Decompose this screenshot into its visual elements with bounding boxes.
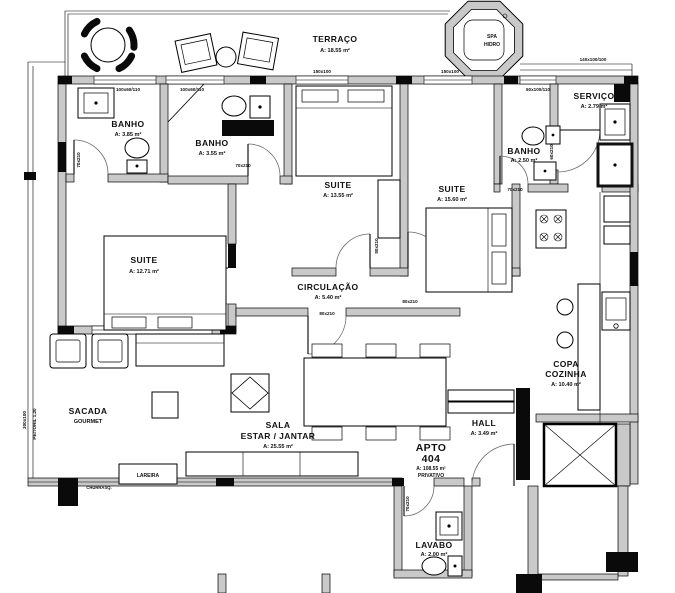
door-dim: 70x210 (507, 187, 523, 192)
dining-table (304, 344, 450, 440)
spa-sublabel: HIDRO (484, 42, 500, 48)
window-dim: 140x100/100 (580, 57, 607, 62)
terraco-area: A: 18.55 m² (320, 47, 350, 54)
wall-segment (168, 176, 248, 184)
sacada-label: SACADA (69, 406, 108, 416)
lounge-chair (175, 34, 217, 73)
wall-segment (536, 414, 638, 422)
column (58, 326, 74, 334)
suite2-label: SUITE (324, 180, 351, 190)
wall-segment (434, 478, 464, 486)
suite1-label: SUITE (130, 255, 157, 265)
wall-segment (538, 574, 618, 580)
door-dim: 80x210 (319, 311, 335, 316)
tv-rack (231, 374, 269, 412)
pillow (158, 317, 192, 328)
terrace-right-wall (520, 64, 632, 76)
stool (557, 299, 573, 315)
suite2-area: A: 13.55 m² (323, 192, 353, 199)
dining-chair (420, 344, 450, 357)
kitchen-sink-icon (602, 292, 630, 330)
window-dim: 150x100 (441, 69, 459, 74)
column (250, 76, 266, 84)
floor-plan: TERRAÇO A: 18.55 m² SPA HIDRO BANHO A: 3… (0, 0, 675, 593)
suite1-area: A: 12.71 m² (129, 268, 159, 275)
door-dim: 60x210 (549, 144, 554, 160)
suite3-label: SUITE (438, 184, 465, 194)
sill-note: PEITORIL 1,20 (32, 408, 37, 440)
lounge-chair (237, 32, 278, 70)
pillow (348, 90, 384, 102)
banho2-label: BANHO (195, 138, 228, 148)
toilet-icon (222, 96, 246, 116)
apto-note: PRIVATIVO (418, 473, 444, 479)
churrasqueira-box (58, 478, 78, 506)
lavabo-label: LAVABO (415, 540, 452, 550)
door-dim: 80x210 (402, 299, 418, 304)
wall-segment (228, 184, 236, 244)
window-dim: 100x60/110 (180, 87, 204, 92)
wall-segment (218, 574, 226, 593)
churrasqueira-label: CHURRASQ. (86, 485, 111, 490)
hall-label: HALL (472, 418, 496, 428)
circulacao-label: CIRCULAÇÃO (297, 282, 358, 292)
terrace-chair-icon (84, 56, 97, 69)
spa-label: SPA (487, 34, 497, 40)
window-dim: 100x60/110 (116, 87, 140, 92)
column (228, 244, 236, 268)
pillow (112, 317, 146, 328)
hall-cabinet (448, 402, 514, 413)
column (392, 478, 404, 486)
sala-label: SALA (266, 420, 291, 430)
wardrobe (378, 180, 400, 238)
terrace-round-table (91, 28, 125, 62)
apto-area: A: 108.55 m² (416, 466, 446, 472)
column (396, 76, 412, 84)
servico-area: A: 2.79 m² (581, 103, 608, 110)
copa-label: COPA (553, 359, 579, 369)
spa-basin (464, 20, 504, 60)
kitchen-counter (578, 284, 600, 410)
hall-cabinet (448, 390, 514, 401)
hall-area: A: 3.49 m² (471, 430, 498, 437)
wall-segment (58, 84, 66, 332)
cabinet (604, 226, 630, 244)
dining-chair (366, 427, 396, 440)
window-dim: 60x100/110 (526, 87, 550, 92)
terraco-label: TERRAÇO (313, 34, 358, 44)
servico-label: SERVIÇO (574, 91, 615, 101)
wall-segment (464, 486, 472, 576)
floor-plan-drawing: TERRAÇO A: 18.55 m² SPA HIDRO BANHO A: 3… (0, 0, 675, 593)
column (516, 574, 542, 593)
copa-sublabel: COZINHA (545, 369, 587, 379)
pillow (492, 252, 506, 284)
terrace-chair-icon (119, 56, 132, 69)
toilet-icon (125, 138, 149, 158)
wall-segment (472, 478, 480, 486)
wall-segment (292, 268, 336, 276)
bed (426, 208, 512, 292)
column (504, 76, 518, 84)
bed (296, 86, 392, 176)
pillow (492, 214, 506, 246)
wall-segment (400, 84, 408, 276)
sala-area: A: 25.55 m² (263, 443, 293, 450)
wall-segment (494, 84, 502, 184)
wall-segment (616, 424, 630, 486)
terrace-side-table (216, 47, 236, 67)
door-dim: 80x210 (374, 238, 379, 254)
wall-segment (66, 174, 74, 182)
column (24, 172, 36, 180)
wall-segment (160, 84, 168, 182)
terrace-chair-icon (129, 30, 134, 47)
stove-icon (536, 210, 566, 248)
sofa (136, 334, 224, 366)
wall-segment (108, 174, 168, 182)
banho1-label: BANHO (111, 119, 144, 129)
apto-number: 404 (422, 453, 441, 465)
wall-segment (512, 184, 520, 276)
banho3-area: A: 2.50 m² (511, 157, 538, 164)
sink-icon (436, 512, 462, 540)
bed (104, 236, 226, 330)
dining-chair (312, 427, 342, 440)
toilet-icon (522, 127, 544, 145)
wall-segment (284, 84, 292, 184)
circulacao-area: A: 5.40 m² (315, 294, 342, 301)
banho1-area: A: 3.85 m² (115, 131, 142, 138)
wall-segment (394, 486, 402, 576)
column (606, 552, 638, 572)
dining-chair (366, 344, 396, 357)
suite3-area: A: 15.60 m² (437, 196, 467, 203)
wall-segment (528, 184, 568, 192)
door-dim: 70x210 (235, 163, 251, 168)
column (630, 252, 638, 286)
wall-segment (550, 84, 558, 128)
pillow (302, 90, 338, 102)
cabinet (604, 196, 630, 222)
copa-area: A: 10.40 m² (551, 381, 581, 388)
wall-segment (236, 308, 308, 316)
sacada-sublabel: GOURMET (74, 419, 103, 425)
sideboard (186, 452, 358, 476)
wall-black (516, 388, 530, 480)
sala-sublabel: ESTAR / JANTAR (241, 431, 316, 441)
wall-segment (346, 308, 460, 316)
toilet-icon (422, 557, 446, 575)
wall-segment (370, 268, 408, 276)
lareira-label: LAREIRA (137, 473, 160, 479)
door-dim: 70x210 (405, 496, 410, 512)
banho3-label: BANHO (507, 146, 540, 156)
stool (557, 332, 573, 348)
banho2-area: A: 3.55 m² (199, 150, 226, 157)
window-dim: 150x100 (313, 69, 331, 74)
column (216, 478, 234, 486)
window-dim: 300x100 (22, 411, 27, 429)
column (624, 76, 638, 84)
lavabo-area: A: 2.00 m² (421, 551, 448, 558)
door-dim: 70x210 (76, 152, 81, 168)
wall-segment (280, 176, 292, 184)
wall-segment (494, 184, 500, 192)
elevator-shaft (544, 424, 616, 486)
wall-segment (322, 574, 330, 593)
terrace-chair-icon (84, 21, 97, 34)
coffee-table (152, 392, 178, 418)
dining-chair (312, 344, 342, 357)
dining-chair (420, 427, 450, 440)
spa-hidro-tub (445, 1, 523, 79)
column (58, 76, 72, 84)
vanity-counter (222, 120, 274, 136)
column (58, 142, 66, 172)
